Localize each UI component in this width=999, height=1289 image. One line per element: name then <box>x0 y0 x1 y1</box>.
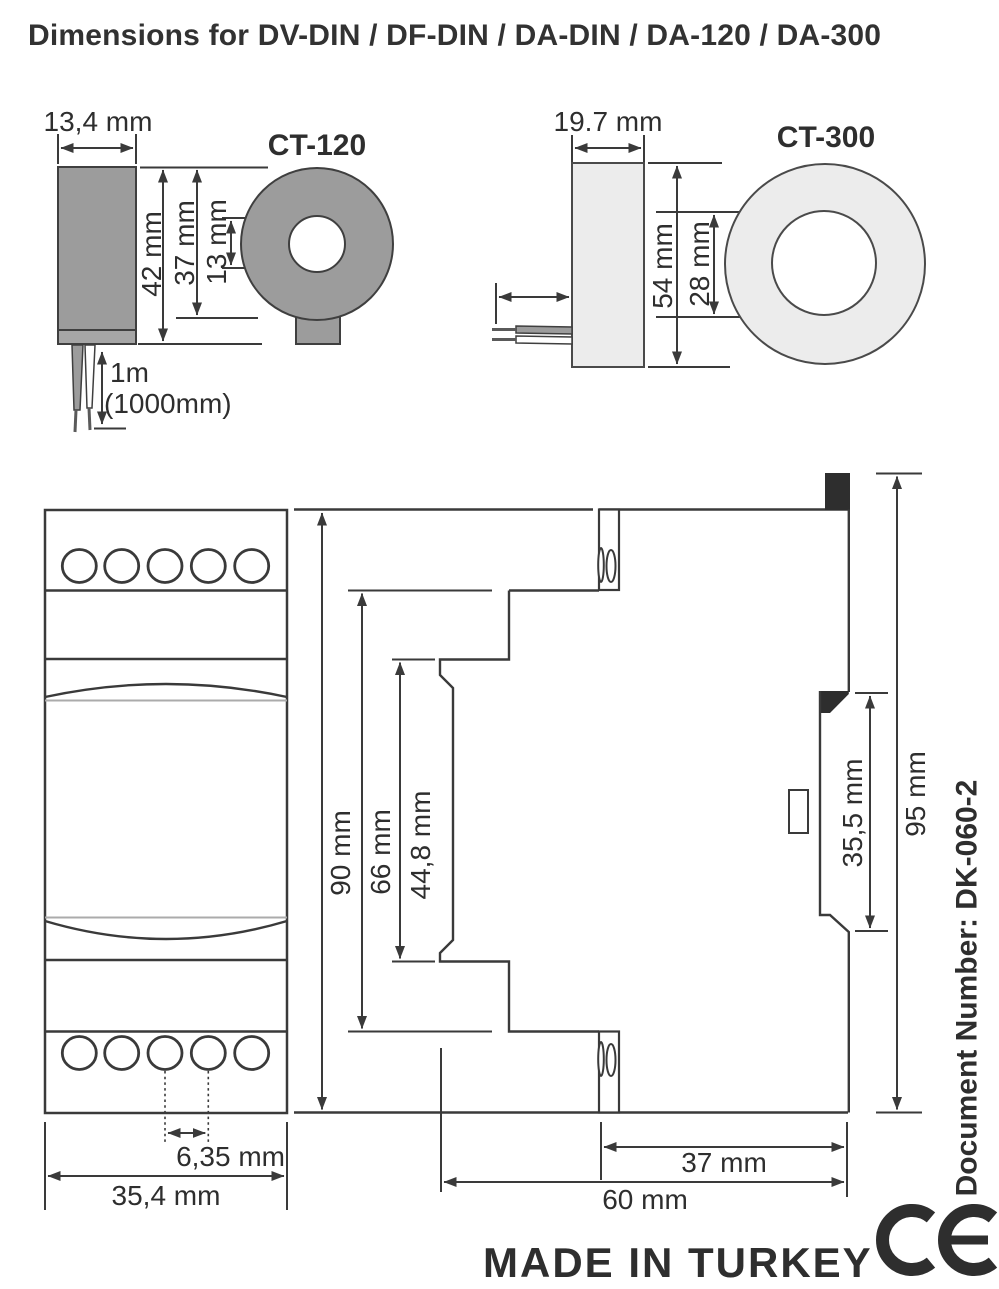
front-height-label: 90 mm <box>325 810 356 896</box>
ct300-hole <box>772 211 876 315</box>
made-in-label: MADE IN TURKEY <box>483 1239 873 1286</box>
ct120-side-base <box>58 330 136 344</box>
ct300-title: CT-300 <box>777 121 875 154</box>
ct120-wire-tip <box>89 408 90 430</box>
terminal-circle <box>105 550 139 583</box>
terminal-circle <box>191 550 225 583</box>
page-title: Dimensions for DV-DIN / DF-DIN / DA-DIN … <box>28 19 881 52</box>
din-front-outline <box>45 510 287 1113</box>
terminal-circle <box>148 1037 182 1070</box>
front-width-label: 35,4 mm <box>112 1180 221 1211</box>
document-number: Document Number: DK-060-2 <box>951 780 984 1197</box>
terminal-circle <box>191 1037 225 1070</box>
din-rail-slot <box>789 790 808 833</box>
terminal-circle <box>148 550 182 583</box>
din-front-curve-top <box>45 684 287 697</box>
pitch-label: 6,35 mm <box>176 1141 285 1172</box>
terminal-circle <box>62 1037 96 1070</box>
screw-hole <box>598 548 604 582</box>
ct120-wire-white <box>85 345 95 408</box>
ct120-hole-label: 13 mm <box>201 199 232 285</box>
ct120-hole <box>289 216 345 272</box>
rail-seat-label: 35,5 mm <box>837 759 868 868</box>
overall-depth-label: 60 mm <box>602 1184 688 1215</box>
din-rail-clip-top <box>825 473 850 510</box>
ce-letter-c <box>883 1211 931 1270</box>
ct120-wire-tip <box>75 410 76 432</box>
ct120-body-label: 37 mm <box>169 200 200 286</box>
ct300-wire-gray <box>516 326 572 334</box>
mid-height-label: 66 mm <box>365 809 396 895</box>
screw-hole <box>598 1042 604 1076</box>
ct300-height-label: 54 mm <box>647 223 678 309</box>
din-rail-seat-profile <box>820 691 849 1113</box>
din-side-front-profile <box>440 591 599 1032</box>
ct300-hole-label: 28 mm <box>684 221 715 307</box>
ct300-side-body <box>572 163 644 367</box>
dimensions-drawing: Dimensions for DV-DIN / DF-DIN / DA-DIN … <box>0 0 999 1289</box>
ct120-side-body <box>58 167 136 330</box>
screw-hole <box>607 550 616 582</box>
screw-hole <box>607 1044 616 1076</box>
ce-mark-icon <box>883 1211 993 1270</box>
ct300-wire-white <box>516 336 572 344</box>
terminal-circle <box>235 550 269 583</box>
din-front-view: 6,35 mm 35,4 mm 90 mm <box>45 510 356 1211</box>
din-side-view: 66 mm 44,8 mm 35,5 mm 95 mm 37 mm 60 mm <box>294 473 931 1215</box>
terminal-circle <box>62 550 96 583</box>
ct120-height-label: 42 mm <box>136 211 167 297</box>
ct120-drawing: 13,4 mm 1m (1000mm) 42 mm 37 mm 13 mm <box>44 106 393 432</box>
din-front-curve-bottom <box>45 921 287 939</box>
din-rail-hook-upper <box>820 691 849 713</box>
terminal-circle <box>105 1037 139 1070</box>
terminal-depth-label: 37 mm <box>681 1147 767 1178</box>
overall-height-label: 95 mm <box>900 751 931 837</box>
ct120-width-label: 13,4 mm <box>44 106 153 137</box>
ct120-cable-alt-label: (1000mm) <box>104 388 232 419</box>
ct120-wire-gray <box>72 345 83 410</box>
ct300-drawing: 19.7 mm 54 mm 28 mm CT-300 <box>492 106 925 367</box>
ct120-cable-label: 1m <box>110 357 149 388</box>
panel-height-label: 44,8 mm <box>405 791 436 900</box>
ct300-width-label: 19.7 mm <box>554 106 663 137</box>
ct120-title: CT-120 <box>268 129 366 162</box>
terminal-circle <box>235 1037 269 1070</box>
